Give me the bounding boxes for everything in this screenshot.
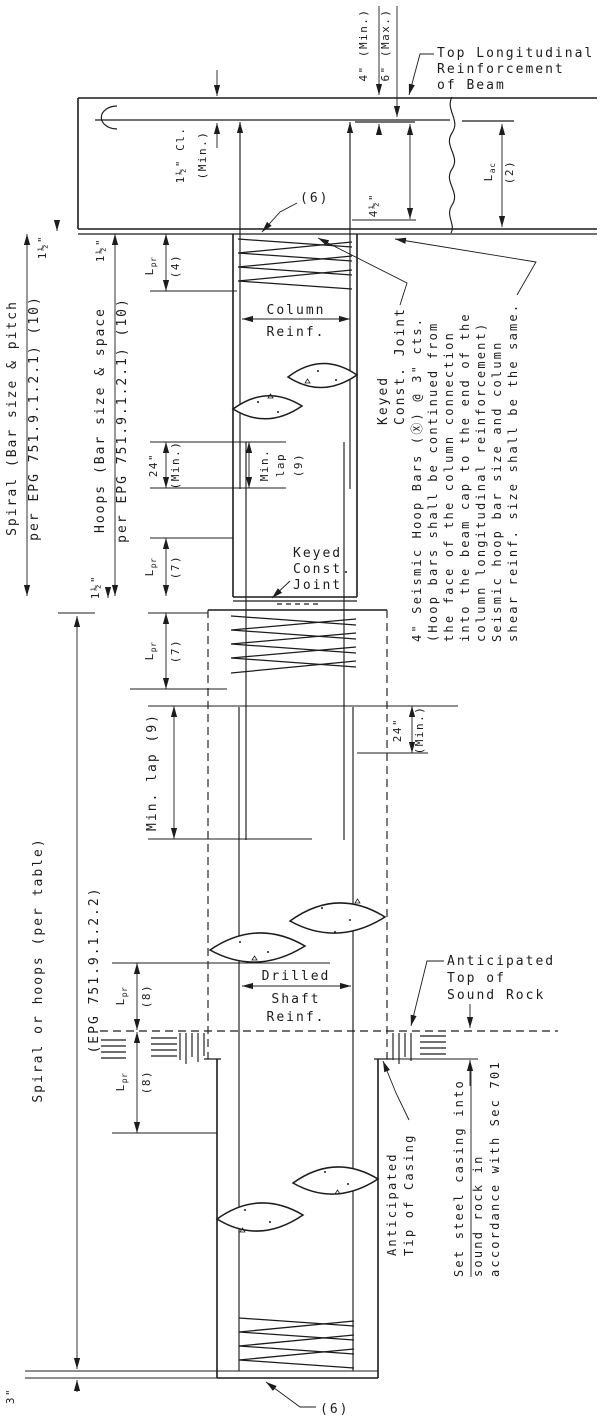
lpr-dim: Lpr xyxy=(143,642,158,661)
reinforcement-detail-drawing: Top Longitudinal Reinforcement of Beam (… xyxy=(0,0,600,1428)
tip-of-casing-label: Tip of Casing xyxy=(402,1133,416,1256)
keyed-joint-2-leader xyxy=(272,581,290,598)
keyed-joint-2-label: Const. xyxy=(293,562,352,577)
half-inch-dim: 1½" xyxy=(94,238,107,262)
three-inch-dim: 3" xyxy=(4,1388,17,1404)
sound-rock-label: Sound Rock xyxy=(447,988,545,1003)
seismic-note-line: Seismic hoop bar size and column xyxy=(490,340,504,642)
beam-cap-outline xyxy=(78,97,597,234)
keyed-joint-2-label: Keyed xyxy=(293,546,342,561)
lpr-ref: (7) xyxy=(169,555,182,579)
drilled-shaft-reinf-label: Drilled xyxy=(262,969,331,984)
tip-of-casing-label: Anticipated xyxy=(385,1152,399,1256)
seismic-note-leader xyxy=(395,239,536,295)
set-casing-note: sound rock in xyxy=(471,1154,485,1277)
clearance-dim: 1½" Cl. xyxy=(174,127,187,184)
bar-hook xyxy=(101,106,117,129)
lac-ref: (2) xyxy=(503,160,516,184)
set-casing-note: Set steel casing into xyxy=(452,1079,466,1277)
sound-rock-label: Anticipated xyxy=(447,954,555,969)
break-symbols xyxy=(210,363,385,1232)
callout-6-top-leader xyxy=(262,203,297,232)
spiral-or-hoops-note: (EPG 751.9.1.2.2) xyxy=(87,886,102,1053)
lpr-ref: (4) xyxy=(169,254,182,278)
lpr-ref: (8) xyxy=(140,1070,153,1094)
beam-break-squiggle xyxy=(449,97,454,233)
min-lap-dim: lap xyxy=(274,453,287,477)
top-reinf-label: Reinforcement xyxy=(437,62,565,77)
half-inch-dim: 1½" xyxy=(36,235,49,259)
seismic-note-line: column longitudinal reinforcement) xyxy=(474,322,488,642)
horizontal-labels: Top Longitudinal Reinforcement of Beam (… xyxy=(262,46,595,1417)
top-reinf-leader xyxy=(409,54,434,95)
lpr-ref: (8) xyxy=(140,984,153,1008)
half-inch-dim: 1½" xyxy=(89,575,102,599)
lap-24-shaft-dim: (Min.) xyxy=(413,706,426,755)
keyed-joint-1-label: Keyed xyxy=(376,376,391,425)
drilled-shaft-reinf-label: Reinf. xyxy=(267,1010,326,1025)
seismic-note-line: into the beam cap to the end of the xyxy=(458,312,472,642)
spiral-or-hoops-note: Spiral or hoops (per table) xyxy=(31,837,46,1102)
seismic-note-line: 4" Seismic Hoop Bars (Ⓧ) @ 3" cts. xyxy=(410,317,424,642)
top-reinf-label: of Beam xyxy=(437,78,506,93)
drilled-shaft-reinf-label: Shaft xyxy=(271,992,320,1007)
spiral-hatch-shaft-top xyxy=(231,616,356,673)
top-reinf-label: Top Longitudinal xyxy=(437,46,594,61)
min-lap-dim: (9) xyxy=(292,453,305,477)
spiral-note: Spiral (Bar size & pitch xyxy=(5,300,20,536)
lpr-dim: Lpr xyxy=(114,1073,129,1092)
lpr-dim: Lpr xyxy=(114,987,129,1006)
seismic-note-line: the face of the column connection xyxy=(442,331,456,642)
callout-6-top: (6) xyxy=(300,191,329,206)
drawing-page: Top Longitudinal Reinforcement of Beam (… xyxy=(0,0,600,1428)
lpr-ref: (7) xyxy=(169,639,182,663)
seismic-note-line: shear reinf. size shall be the same. xyxy=(506,303,520,642)
tip-of-casing-leader xyxy=(383,1061,409,1120)
keyed-joint-1-label: Const. Joint xyxy=(393,307,408,425)
spiral-note: per EPG 751.9.1.2.1) (10) xyxy=(27,295,42,541)
hook-dim: 4½" xyxy=(367,193,380,217)
embed-min-dim: 4" (Min.) xyxy=(357,8,370,81)
hoops-note: Hoops (Bar size & space xyxy=(93,307,108,533)
lap-24-dim: (Min.) xyxy=(169,441,182,490)
callout-6-bottom: (6) xyxy=(320,1402,349,1417)
min-lap-dim: Min. xyxy=(258,449,271,482)
lap-24-shaft-dim: 24" xyxy=(391,718,404,742)
set-casing-note: accordance with Sec 701 xyxy=(488,1060,502,1277)
break-stipple xyxy=(239,370,360,1232)
keyed-joint-2-label: Joint xyxy=(293,578,342,593)
dimension-lines xyxy=(27,6,502,1392)
lac-dim: Lac xyxy=(482,163,497,182)
lpr-dim: Lpr xyxy=(143,257,158,276)
spiral-hatch-shaft-bottom xyxy=(239,1318,354,1368)
seismic-note-line: (Hoop bars shall be continued from xyxy=(426,322,440,642)
min-lap-shaft-dim: Min. lap (9) xyxy=(145,713,160,831)
column-reinf-label: Reinf. xyxy=(267,325,326,340)
callout-6-bottom-leader xyxy=(266,1382,316,1407)
embed-max-dim: 6" (Max.) xyxy=(379,8,392,81)
lap-24-dim: 24" xyxy=(147,453,160,477)
hoops-note: per EPG 751.9.1.2.1) (10) xyxy=(115,297,130,543)
sound-rock-label: Top of xyxy=(447,971,506,986)
clearance-dim: (Min.) xyxy=(196,131,209,180)
sound-rock-leader xyxy=(411,961,444,1026)
column-reinf-label: Column xyxy=(267,303,326,318)
lpr-dim: Lpr xyxy=(143,558,158,577)
